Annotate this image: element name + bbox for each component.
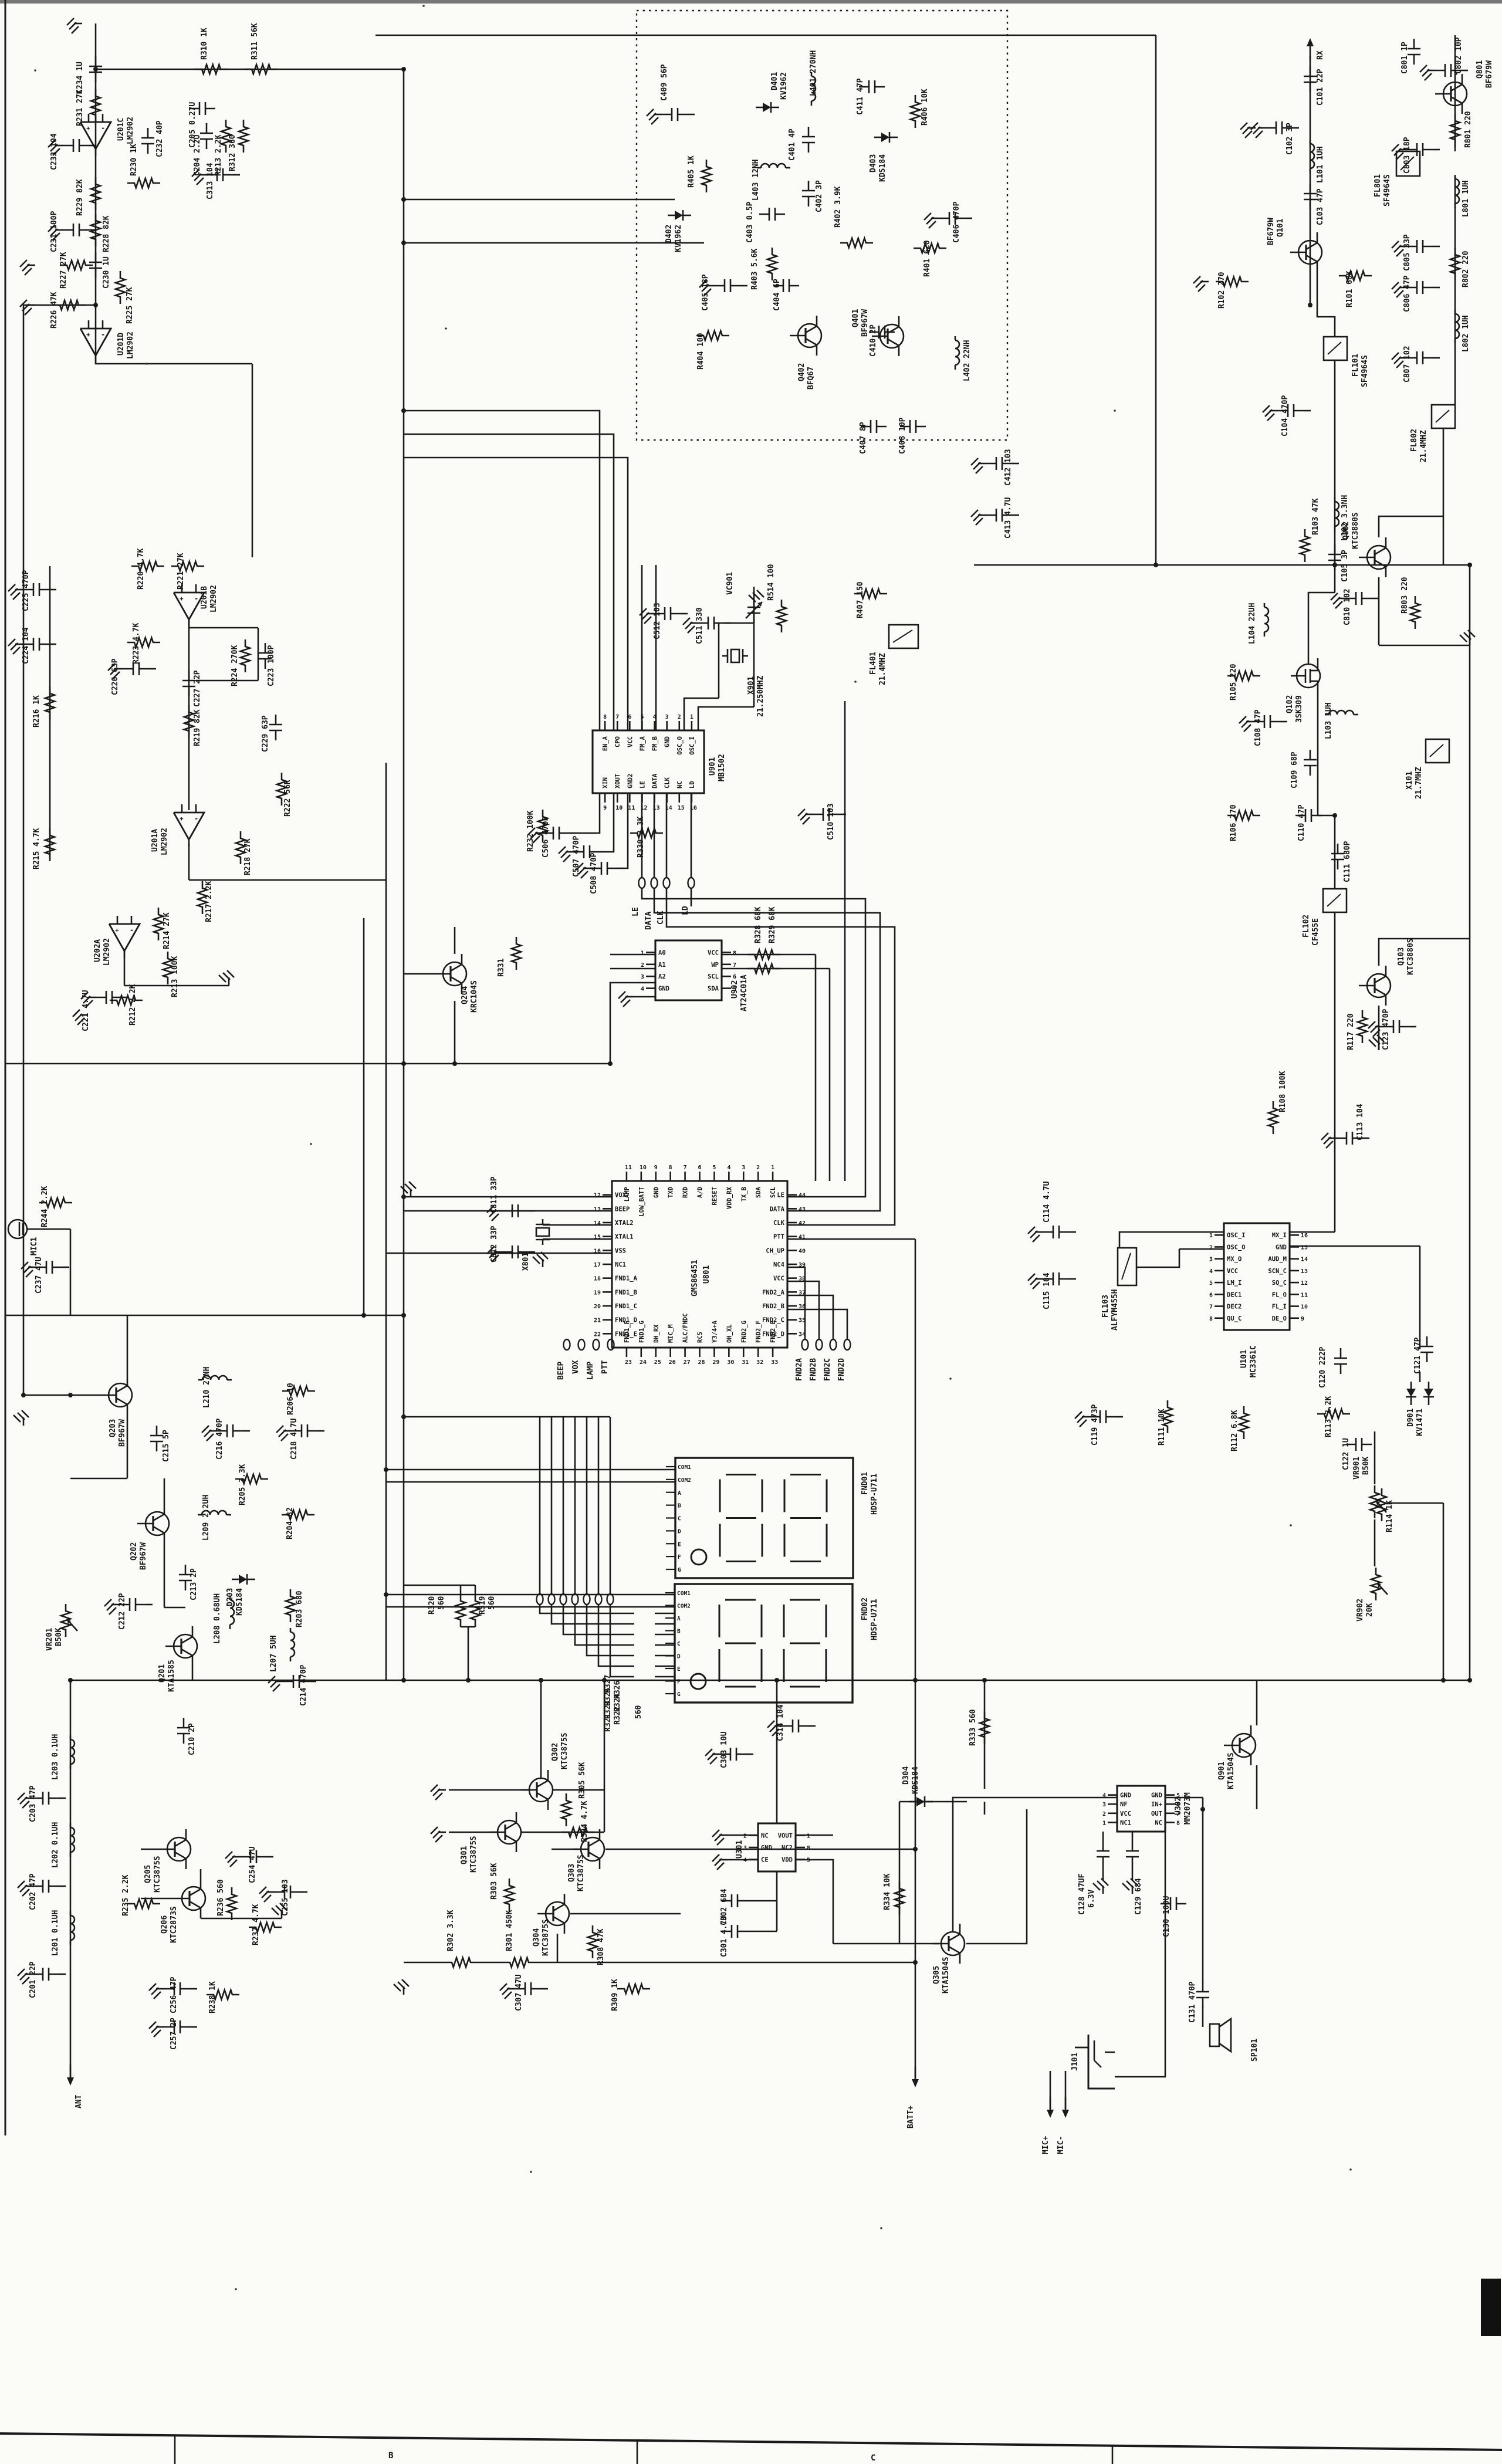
component-label: B50K <box>1362 1457 1371 1475</box>
component-label: 560 <box>488 1596 496 1610</box>
component-label: KTA1585 <box>167 1660 176 1692</box>
pin-number: 9 <box>654 1165 658 1171</box>
component-label: R103 47K <box>1311 498 1320 535</box>
component-label: C510 103 <box>827 803 835 840</box>
component-label: R319 <box>478 1596 487 1615</box>
component-label: C210 2P <box>188 1723 197 1755</box>
component-label: R244 2.2K <box>40 1186 49 1227</box>
display-pin-name: B <box>677 1629 681 1635</box>
component-label: C233 104 <box>50 133 59 170</box>
pin-name: NC4 <box>773 1261 784 1268</box>
component-label: R230 1K <box>130 144 138 176</box>
pin-name: IN+ <box>1151 1801 1162 1808</box>
pin-number: 28 <box>698 1359 705 1366</box>
component-label: Q101 <box>1276 219 1285 237</box>
component-label: BF967W <box>139 1542 148 1570</box>
component-label: C232 40P <box>155 120 164 157</box>
component-label: L103 1UH <box>1324 702 1333 739</box>
pin-number: 29 <box>712 1359 719 1366</box>
pin-name: GND <box>1151 1792 1162 1799</box>
junction-dot <box>401 1678 406 1683</box>
component-label: R406 10K <box>921 89 929 126</box>
pin-name: FND1_B <box>615 1289 637 1296</box>
opamp-minus: - <box>194 814 198 823</box>
component-label: R302 3.3K <box>446 1910 455 1951</box>
component-label: VR201 <box>45 1628 54 1651</box>
pin-name: FM_B <box>652 736 659 751</box>
pin-number: 14 <box>1301 1257 1308 1263</box>
component-label: R218 27K <box>243 838 252 875</box>
component-label: C111 680P <box>1343 841 1352 882</box>
component-label: R303 56K <box>490 1863 499 1900</box>
component-label: R305 56K <box>578 1762 587 1799</box>
component-label: U302 <box>1174 1797 1183 1815</box>
component-label: KTC3880S <box>1351 512 1360 549</box>
component-label: C102 3P <box>1286 123 1294 155</box>
pin-number: 6 <box>698 1165 702 1171</box>
component-label: R213 2.2K <box>214 134 223 176</box>
component-label: C403 0.5P <box>746 201 755 243</box>
junction-dot <box>384 1592 388 1597</box>
component-label: KTC3875S <box>542 1919 550 1956</box>
pin-name: OSC_O <box>1227 1244 1246 1251</box>
pin-number: 17 <box>594 1262 601 1268</box>
component-label: U901 <box>708 757 717 776</box>
pin-number: 42 <box>799 1220 806 1227</box>
pin-number: 41 <box>799 1234 806 1241</box>
junction-dot <box>608 1061 613 1066</box>
display-pin-name: F <box>678 1554 681 1561</box>
component-label: L403 12NH <box>752 160 760 201</box>
component-label: U902 <box>730 980 739 999</box>
pin-name: FM_A <box>639 736 646 751</box>
pin-number: 1 <box>1102 1820 1106 1826</box>
junction-dot <box>1467 563 1472 567</box>
component-label: KV1962 <box>674 225 683 252</box>
pin-number: 14 <box>594 1220 601 1227</box>
pin-number: 11 <box>628 805 635 811</box>
component-label: KV1471 <box>1416 1409 1425 1436</box>
junction-dot <box>384 1467 388 1472</box>
component-label: L402 22NH <box>963 340 972 381</box>
component-label: C204 2.2U <box>193 134 202 176</box>
component-label: FL401 <box>869 652 878 675</box>
component-label: C406 470P <box>952 201 961 243</box>
component-label: U301 <box>735 1840 744 1859</box>
pin-number: 7 <box>1209 1304 1213 1311</box>
component-label: R108 100K <box>1278 1071 1287 1112</box>
component-label: FND2B <box>809 1358 818 1381</box>
display-pin-name: F <box>677 1679 681 1685</box>
scan-speck <box>34 69 36 72</box>
component-label: C506 470P <box>542 816 550 858</box>
pin-name: SDA <box>708 986 719 993</box>
pin-name: FND1_F <box>624 1321 631 1343</box>
pin-number: 20 <box>594 1304 601 1310</box>
component-label: L208 0.68UH <box>213 1593 222 1644</box>
component-label: BF679W <box>1485 60 1494 88</box>
pin-number: 5 <box>640 714 644 720</box>
scan-artifact-bar <box>1481 2279 1501 2336</box>
scan-speck <box>235 2288 237 2290</box>
scan-speck <box>1290 1524 1292 1527</box>
component-label: Q802 <box>1342 522 1351 540</box>
pin-name: LOW_BATT <box>638 1187 645 1217</box>
pin-name: QU_C <box>1227 1315 1241 1322</box>
component-label: R310 1K <box>200 28 209 60</box>
component-label: Q401 <box>851 309 860 327</box>
component-label: R221 27K <box>177 553 185 590</box>
pin-number: 10 <box>615 805 623 811</box>
pin-number: 33 <box>771 1359 778 1366</box>
pin-name: MIC_M <box>668 1324 675 1343</box>
component-label: C113 104 <box>1356 1104 1365 1140</box>
component-label: J101 <box>1071 2053 1080 2071</box>
pin-number: 14 <box>665 805 672 811</box>
pin-name: GND2 <box>627 774 634 788</box>
pin-number: 5 <box>1209 1280 1213 1287</box>
component-label: FL802 <box>1410 429 1419 452</box>
component-label: R212 2.2K <box>128 984 137 1025</box>
pin-number: 5 <box>807 1857 810 1864</box>
component-label: 21.250MHZ <box>756 675 765 717</box>
pin-name: TX_B <box>740 1187 747 1201</box>
component-label: MB1502 <box>718 754 726 781</box>
pin-number: 1 <box>690 714 694 720</box>
component-label: R331 <box>497 959 506 977</box>
component-label: D901 <box>1406 1409 1415 1427</box>
component-label: R333 560 <box>969 1709 977 1746</box>
component-label: R330 3.3K <box>637 816 645 858</box>
component-label: C409 56P <box>660 64 669 101</box>
pin-name: PTT <box>773 1234 784 1241</box>
pin-name: GND <box>664 736 671 747</box>
component-label: CLK <box>657 911 665 925</box>
component-label: C231 100P <box>50 211 59 252</box>
pin-name: VDD <box>782 1857 793 1864</box>
component-label: R334 10K <box>883 1873 892 1910</box>
pin-name: EN_A <box>602 736 609 751</box>
pin-name: A1 <box>658 962 666 969</box>
display-pin-name: D <box>677 1654 681 1660</box>
component-label: R106 270 <box>1229 804 1238 841</box>
display-pin-name: D <box>678 1528 681 1535</box>
component-label: U801 <box>702 1265 711 1284</box>
scan-speck <box>1114 409 1116 412</box>
display-pin-name: COM1 <box>677 1590 691 1597</box>
component-label: SF4964S <box>1383 174 1392 207</box>
scan-speck <box>880 2227 882 2229</box>
junction-dot <box>361 1313 366 1318</box>
component-label: MIC- <box>1057 2136 1065 2154</box>
component-label: L101 1UH <box>1316 146 1325 183</box>
pin-number: 25 <box>654 1359 661 1366</box>
pin-name: GND <box>1276 1244 1287 1251</box>
component-label: VR902 <box>1356 1599 1365 1622</box>
junction-dot <box>93 303 98 307</box>
zone-letter: B <box>388 2451 393 2460</box>
component-label: C224 104 <box>22 627 31 664</box>
scan-speck <box>530 2171 532 2173</box>
pin-name: VCC <box>1227 1268 1238 1275</box>
component-label: C412 103 <box>1004 449 1013 486</box>
component-label: HDSP-U711 <box>870 1473 879 1515</box>
scan-speck <box>146 363 148 365</box>
component-label: SP101 <box>1250 2039 1259 2062</box>
pin-name: MX_O <box>1227 1256 1241 1263</box>
component-label: L802 1UH <box>1462 315 1470 352</box>
pin-name: FND2_G <box>740 1321 747 1343</box>
junction-dot <box>913 1678 918 1683</box>
component-label: FL801 <box>1374 174 1382 197</box>
pin-number: 4 <box>1209 1268 1213 1275</box>
pin-number: 2 <box>1102 1811 1106 1817</box>
pin-number: 4 <box>641 986 644 993</box>
circuit-schematic: SCANNED FM TRANSCEIVER SCHEMATIC SHEET +… <box>0 0 1502 2464</box>
component-label: R204 82 <box>286 1507 295 1539</box>
junction-dot <box>913 1960 918 1965</box>
component-label: C805 33P <box>1403 234 1412 271</box>
junction-dot <box>1308 303 1312 307</box>
pin-number: 15 <box>594 1234 601 1241</box>
component-label: R304 4.7K <box>580 1800 589 1842</box>
component-label: KTC3875S <box>469 1836 478 1873</box>
component-label: Q204 <box>461 986 469 1004</box>
component-label: Q801 <box>1476 60 1484 79</box>
pin-number: 4 <box>727 1165 730 1171</box>
junction-dot <box>68 1393 73 1397</box>
pin-name: FND1_C <box>615 1303 637 1310</box>
pin-number: 4 <box>653 714 657 720</box>
component-label: C803 18P <box>1403 137 1412 174</box>
component-label: C801 1P <box>1400 42 1409 74</box>
pin-number: 7 <box>733 962 736 969</box>
pin-name: FND2_A <box>762 1289 785 1296</box>
pin-name: XTAL2 <box>615 1220 634 1227</box>
component-label: R311 56K <box>251 23 259 60</box>
pin-number: 30 <box>727 1359 734 1366</box>
pin-number: 5 <box>712 1165 716 1171</box>
component-label: ALFYM455H <box>1111 1289 1119 1331</box>
component-label: R235 2.2K <box>121 1874 130 1916</box>
component-label: L801 1UH <box>1462 180 1470 217</box>
pin-name: NC <box>761 1833 769 1840</box>
pin-name: FL_O <box>1272 1291 1287 1298</box>
component-label: C313 104 <box>206 163 215 199</box>
component-label: R308 47K <box>597 1928 605 1965</box>
pin-number: 13 <box>594 1206 601 1213</box>
display-pin-name: C <box>677 1641 681 1647</box>
pin-name: VCC <box>773 1275 784 1282</box>
component-label: C314 104 <box>776 1704 785 1741</box>
component-label: C508 470P <box>590 852 598 894</box>
component-label: R219 82K <box>193 709 202 746</box>
pin-number: 32 <box>756 1359 763 1366</box>
component-label: R217 2.2K <box>205 881 214 922</box>
component-label: R238 1K <box>208 1981 217 2013</box>
component-label: DATA <box>644 912 653 930</box>
component-label: KDS184 <box>911 1766 920 1794</box>
pin-name: GND <box>658 986 669 993</box>
opamp-plus: + <box>115 926 119 934</box>
pin-name: GND <box>1120 1792 1131 1799</box>
component-label: D403 <box>869 154 878 172</box>
pin-number: 40 <box>799 1248 806 1254</box>
component-label: C507 470P <box>572 835 581 877</box>
component-label: C216 470P <box>215 1418 224 1460</box>
pin-name: DH_RX <box>653 1324 660 1343</box>
component-label: C115 104 <box>1043 1272 1051 1309</box>
pin-number: 4 <box>1102 1793 1106 1799</box>
component-label: R223 4.7K <box>132 622 141 664</box>
display-pin-name: E <box>678 1541 681 1548</box>
component-label: C105 3P <box>1341 550 1349 582</box>
component-label: 21.4MHZ <box>878 653 887 685</box>
component-label: 21.4MHZ <box>1419 430 1428 462</box>
pin-number: 37 <box>799 1289 806 1296</box>
pin-name: OUT <box>1151 1810 1162 1817</box>
component-label: FND2A <box>795 1358 804 1381</box>
pin-name: NC2 <box>782 1844 793 1852</box>
pin-number: 2 <box>756 1165 760 1171</box>
pin-number: 3 <box>641 974 644 980</box>
pin-number: 6 <box>1209 1292 1213 1298</box>
component-label: C802 10P <box>1454 37 1463 74</box>
pin-number: 9 <box>1301 1316 1304 1322</box>
component-label: U101 <box>1240 1350 1249 1368</box>
component-label: R231 27K <box>76 89 84 126</box>
component-label: R220 4.7K <box>137 548 146 590</box>
display-pin-name: COM2 <box>677 1603 691 1610</box>
component-label: LM2902 <box>209 585 218 612</box>
component-label: C201 22P <box>29 1961 38 1998</box>
component-label: FL102 <box>1302 915 1311 937</box>
component-label: 6.3V <box>1087 1890 1096 1908</box>
component-label: R322 <box>613 1707 622 1725</box>
junction-dot <box>466 1678 471 1683</box>
pin-number: 8 <box>1209 1316 1213 1322</box>
pin-name: TXD <box>668 1187 675 1198</box>
component-label: KTA1504S <box>942 1957 950 1993</box>
pin-name: SDA <box>755 1186 762 1198</box>
pin-number: 43 <box>799 1206 806 1213</box>
pin-number: 16 <box>1301 1233 1308 1239</box>
component-label: C225 470P <box>22 570 31 611</box>
component-label: C122 1U <box>1342 1438 1351 1470</box>
component-label: BFQ67 <box>807 367 816 390</box>
opamp-minus: - <box>130 926 134 934</box>
component-label: PTT <box>601 1360 610 1374</box>
pin-name: OSC_I <box>689 736 696 755</box>
component-label: X801 <box>522 1253 530 1271</box>
pin-name: VCC <box>1120 1810 1131 1817</box>
component-label: R214 27K <box>163 912 171 949</box>
component-label: C810 102 <box>1343 588 1352 625</box>
pin-number: 8 <box>1176 1820 1180 1826</box>
component-label: R117 220 <box>1347 1013 1355 1050</box>
pin-number: 10 <box>640 1165 647 1171</box>
component-label: R229 82K <box>76 179 84 216</box>
display-pin-name: COM2 <box>678 1477 691 1484</box>
component-label: VOX <box>571 1360 580 1374</box>
component-label: C213 2P <box>190 1568 198 1600</box>
pin-name: XIN <box>602 777 609 788</box>
component-label: C218 4.7U <box>290 1418 299 1460</box>
component-label: R203 680 <box>295 1590 304 1627</box>
junction-dot <box>452 1061 457 1066</box>
component-label: 560 <box>634 1705 643 1719</box>
component-label: C257 2P <box>170 2018 178 2050</box>
component-label: BATT+ <box>906 2106 915 2128</box>
display-pin-name: G <box>678 1567 681 1573</box>
pin-name: LD <box>689 781 696 788</box>
component-label: R227 27K <box>59 252 68 289</box>
component-label: C806 47P <box>1403 275 1412 312</box>
component-label: R228 82K <box>102 215 111 252</box>
component-label: C221 4.7U <box>82 990 90 1031</box>
pin-name: SCL <box>770 1187 777 1198</box>
pin-number: 7 <box>684 1165 687 1171</box>
opamp-minus: - <box>194 594 198 603</box>
pin-number: 13 <box>653 805 660 811</box>
component-label: C128 47UF <box>1078 1873 1087 1915</box>
component-label: R224 270K <box>231 645 239 686</box>
component-label: VR901 <box>1352 1457 1361 1480</box>
component-label: ANT <box>75 2094 83 2108</box>
pin-name: NC1 <box>615 1261 626 1268</box>
component-label: R329 68K <box>768 906 777 943</box>
pin-name: A2 <box>658 973 666 980</box>
component-label: L202 0.1UH <box>51 1822 60 1868</box>
pin-name: WP <box>711 962 719 969</box>
pin-number: 27 <box>684 1359 691 1366</box>
component-label: CF455E <box>1311 918 1320 946</box>
pin-number: 8 <box>669 1165 672 1171</box>
scan-speck <box>1349 2168 1352 2171</box>
component-label: LM2902 <box>103 938 111 966</box>
pin-name: CE <box>761 1857 769 1864</box>
junction-dot <box>1153 563 1158 567</box>
component-label: D401 <box>770 72 779 90</box>
pin-name: DE_O <box>1272 1315 1287 1322</box>
component-label: R232 100K <box>526 810 535 852</box>
pin-number: 7 <box>615 714 619 720</box>
component-label: FND01 <box>861 1472 870 1495</box>
junction-dot <box>1332 813 1337 818</box>
component-label: R213 100K <box>171 956 180 997</box>
component-label: C301 4.7U <box>720 1915 729 1957</box>
pin-name: SCL <box>708 973 719 980</box>
component-label: FL103 <box>1101 1295 1110 1318</box>
pin-name: VOUT <box>778 1833 793 1840</box>
component-label: C402 3P <box>815 180 824 212</box>
pin-number: 3 <box>1209 1257 1213 1263</box>
pin-name: MX_I <box>1272 1232 1287 1239</box>
component-label: MM2073M <box>1183 1792 1192 1825</box>
pin-number: 26 <box>669 1359 676 1366</box>
component-label: C110 47P <box>1297 804 1306 841</box>
pin-number: 11 <box>1301 1292 1308 1298</box>
zone-letter: C <box>871 2453 875 2463</box>
component-label: X101 <box>1405 771 1414 790</box>
component-label: FND2C <box>823 1358 832 1381</box>
component-label: LE <box>631 907 640 916</box>
pin-name: ALC/FNDC <box>682 1313 689 1343</box>
pin-number: 10 <box>1301 1304 1308 1311</box>
component-label: C237 47U <box>35 1257 43 1294</box>
pin-name: FL_I <box>1272 1304 1287 1311</box>
pin-number: 9 <box>603 805 607 811</box>
